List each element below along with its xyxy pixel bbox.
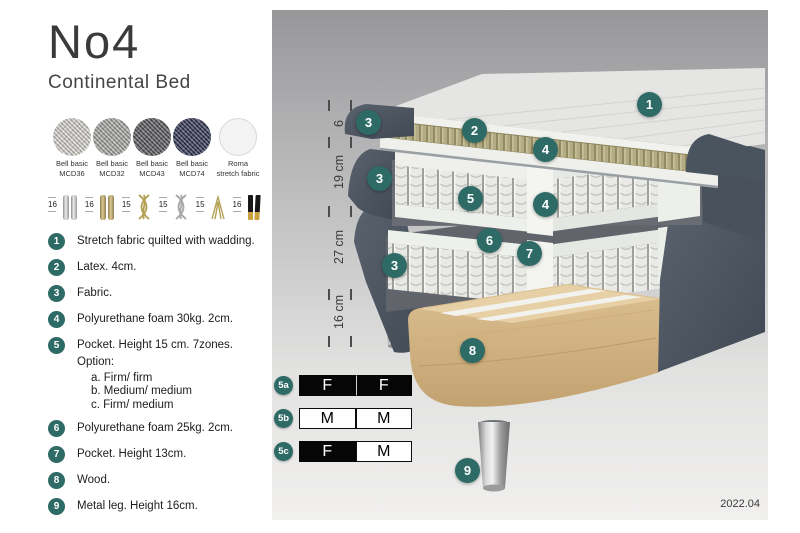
feature-text: Pocket. Height 15 cm. 7zones. Option: a.… — [77, 337, 272, 412]
fabric-swatch-circle — [133, 118, 171, 156]
fabric-swatch-label: Bell basic MCD36 — [56, 159, 88, 179]
size-tick — [122, 211, 130, 212]
firmness-option-5c: 5c F M — [274, 441, 412, 462]
leg-option: 15 — [122, 190, 155, 220]
feature-text-main: Pocket. Height 15 cm. 7zones. Option: — [77, 339, 233, 368]
callout-6: 6 — [477, 228, 502, 253]
feature-number-badge: 5 — [48, 337, 65, 354]
leg-option: 15 — [159, 190, 192, 220]
product-info-column: No4 Continental Bed Bell basic MCD36 Bel… — [0, 0, 272, 533]
callout-4b: 4 — [533, 192, 558, 217]
feature-text: Wood. — [77, 472, 110, 489]
fabric-swatch-option: Roma stretch fabric — [212, 118, 264, 179]
metal-leg — [478, 420, 510, 492]
product-title: No4 — [48, 18, 272, 65]
fabric-swatch-option: Bell basic MCD74 — [172, 118, 212, 179]
fabric-name: Bell basic — [136, 159, 168, 168]
size-tick — [85, 197, 93, 198]
firmness-option-5a: 5a F F — [274, 375, 412, 396]
feature-text: Polyurethane foam 30kg. 2cm. — [77, 311, 233, 328]
feature-item: 6 Polyurethane foam 25kg. 2cm. — [48, 420, 272, 437]
callout-5: 5 — [458, 186, 483, 211]
ruler-label-lower-box: 27 cm — [326, 215, 352, 279]
leg-height: 16 — [48, 195, 57, 214]
fabric-swatch-label: Bell basic MCD43 — [136, 159, 168, 179]
feature-number-badge: 7 — [48, 446, 65, 463]
feature-suboption: b. Medium/ medium — [91, 385, 272, 398]
fabric-swatch-label: Bell basic MCD32 — [96, 159, 128, 179]
fabric-code: MCD43 — [139, 169, 164, 178]
firmness-cell: F — [356, 375, 413, 396]
ruler-label-mid-mattress: 19 cm — [326, 140, 352, 204]
firmness-cell: M — [356, 408, 413, 429]
feature-number-badge: 3 — [48, 285, 65, 302]
feature-text: Polyurethane foam 25kg. 2cm. — [77, 420, 233, 437]
feature-item: 7 Pocket. Height 13cm. — [48, 446, 272, 463]
callout-1: 1 — [637, 92, 662, 117]
leg-height: 15 — [196, 195, 205, 214]
leg-height: 15 — [159, 195, 168, 214]
fabric-name: Bell basic — [96, 159, 128, 168]
leg-style-icon — [170, 190, 192, 220]
leg-height-value: 16 — [48, 200, 57, 209]
size-tick — [48, 197, 56, 198]
fabric-swatch-circle — [173, 118, 211, 156]
firmness-cell: F — [299, 441, 356, 462]
leg-style-icon — [133, 190, 155, 220]
fabric-swatch-label: Roma stretch fabric — [217, 159, 260, 179]
feature-item: 8 Wood. — [48, 472, 272, 489]
feature-suboption: c. Firm/ medium — [91, 399, 272, 412]
fabric-swatch-row: Bell basic MCD36 Bell basic MCD32 Bell b… — [52, 118, 272, 179]
fabric-name: Roma — [228, 159, 248, 168]
size-tick — [196, 197, 204, 198]
fabric-swatch-circle — [219, 118, 257, 156]
version-label: 2022.04 — [720, 498, 760, 510]
feature-number-badge: 6 — [48, 420, 65, 437]
size-tick — [233, 211, 241, 212]
leg-option: 16 — [48, 190, 81, 220]
dimension-ruler: 6 19 cm 27 cm 16 cm — [312, 90, 364, 360]
feature-suboption: a. Firm/ firm — [91, 372, 272, 385]
fabric-code: MCD32 — [99, 169, 124, 178]
leg-style-icon — [207, 190, 229, 220]
callout-3b: 3 — [367, 166, 392, 191]
leg-height: 16 — [233, 195, 242, 214]
size-tick — [159, 197, 167, 198]
leg-style-icon — [59, 190, 81, 220]
fabric-code: MCD36 — [59, 169, 84, 178]
feature-item: 2 Latex. 4cm. — [48, 259, 272, 276]
callout-9: 9 — [455, 458, 480, 483]
ruler-label-leg: 16 cm — [326, 280, 352, 344]
size-tick — [196, 211, 204, 212]
leg-option: 15 — [196, 190, 229, 220]
leg-style-icon — [243, 190, 265, 220]
firmness-cell: F — [299, 375, 356, 396]
fabric-code: stretch fabric — [217, 169, 260, 178]
fabric-swatch-circle — [93, 118, 131, 156]
size-tick — [85, 211, 93, 212]
feature-item: 4 Polyurethane foam 30kg. 2cm. — [48, 311, 272, 328]
firmness-id-badge: 5a — [274, 376, 293, 395]
fabric-swatch-option: Bell basic MCD32 — [92, 118, 132, 179]
firmness-bar: F M — [299, 441, 412, 462]
catalog-page: No4 Continental Bed Bell basic MCD36 Bel… — [0, 0, 800, 533]
callout-3a: 3 — [356, 110, 381, 135]
feature-number-badge: 2 — [48, 259, 65, 276]
leg-style-icon — [96, 190, 118, 220]
firmness-id-badge: 5c — [274, 442, 293, 461]
feature-text: Fabric. — [77, 285, 112, 302]
fabric-swatch-circle — [53, 118, 91, 156]
leg-option: 16 — [233, 190, 266, 220]
size-tick — [233, 197, 241, 198]
callout-4a: 4 — [533, 137, 558, 162]
feature-text: Pocket. Height 13cm. — [77, 446, 186, 463]
fabric-name: Bell basic — [56, 159, 88, 168]
feature-text: Stretch fabric quilted with wadding. — [77, 233, 255, 250]
product-diagram-panel: 6 19 cm 27 cm 16 cm 1 2 3 3 3 4 4 5 6 7 … — [272, 10, 768, 520]
firmness-bar: F F — [299, 375, 412, 396]
fabric-name: Bell basic — [176, 159, 208, 168]
feature-text: Metal leg. Height 16cm. — [77, 498, 198, 515]
leg-option: 16 — [85, 190, 118, 220]
feature-item: 1 Stretch fabric quilted with wadding. — [48, 233, 272, 250]
feature-item: 3 Fabric. — [48, 285, 272, 302]
fabric-swatch-option: Bell basic MCD43 — [132, 118, 172, 179]
fabric-code: MCD74 — [179, 169, 204, 178]
firmness-id-badge: 5b — [274, 409, 293, 428]
fabric-swatch-option: Bell basic MCD36 — [52, 118, 92, 179]
firmness-cell: M — [356, 441, 413, 462]
firmness-option-5b: 5b M M — [274, 408, 412, 429]
leg-height-value: 15 — [196, 200, 205, 209]
leg-height: 15 — [122, 195, 131, 214]
leg-height-value: 16 — [233, 200, 242, 209]
firmness-cell: M — [299, 408, 356, 429]
feature-list: 1 Stretch fabric quilted with wadding. 2… — [48, 233, 272, 516]
feature-number-badge: 8 — [48, 472, 65, 489]
firmness-bar: M M — [299, 408, 412, 429]
feature-item: 5 Pocket. Height 15 cm. 7zones. Option: … — [48, 337, 272, 412]
callout-7: 7 — [517, 241, 542, 266]
size-tick — [48, 211, 56, 212]
leg-options-row: 16 16 15 15 15 16 — [48, 190, 272, 220]
callout-8: 8 — [460, 338, 485, 363]
leg-height-value: 15 — [122, 200, 131, 209]
feature-number-badge: 9 — [48, 498, 65, 515]
leg-height-value: 16 — [85, 200, 94, 209]
size-tick — [122, 197, 130, 198]
feature-item: 9 Metal leg. Height 16cm. — [48, 498, 272, 515]
fabric-swatch-label: Bell basic MCD74 — [176, 159, 208, 179]
callout-2: 2 — [462, 118, 487, 143]
feature-number-badge: 4 — [48, 311, 65, 328]
size-tick — [159, 211, 167, 212]
feature-number-badge: 1 — [48, 233, 65, 250]
feature-text: Latex. 4cm. — [77, 259, 136, 276]
product-subtitle: Continental Bed — [48, 72, 272, 94]
callout-3c: 3 — [382, 253, 407, 278]
leg-height-value: 15 — [159, 200, 168, 209]
leg-height: 16 — [85, 195, 94, 214]
